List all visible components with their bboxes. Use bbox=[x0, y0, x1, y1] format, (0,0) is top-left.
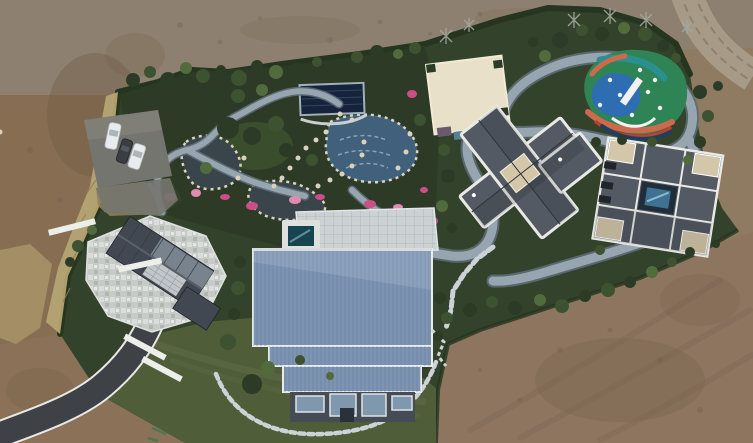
aerial-photo bbox=[0, 0, 753, 443]
square-villa bbox=[593, 138, 724, 257]
barn-facade bbox=[290, 392, 415, 422]
parking-area bbox=[84, 110, 172, 188]
stone-patio bbox=[282, 208, 438, 254]
aerial-photo-canvas bbox=[0, 0, 753, 443]
hot-tub bbox=[282, 220, 320, 252]
